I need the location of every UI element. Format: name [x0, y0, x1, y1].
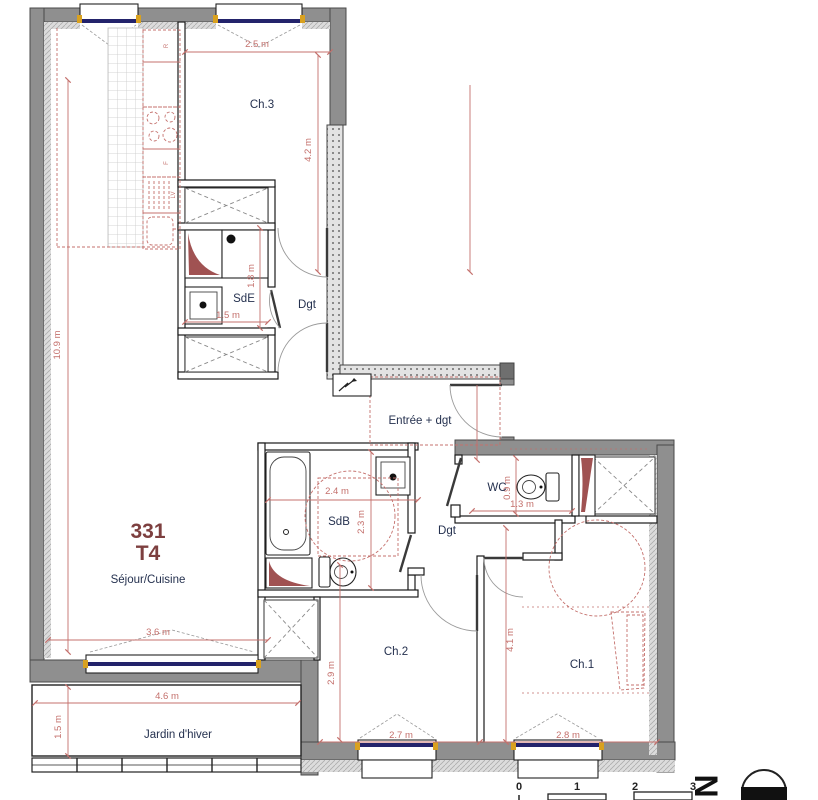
dim-ch3-width: 2.5 m — [245, 39, 269, 50]
room-label-jardin: Jardin d'hiver — [144, 729, 212, 741]
room-label-ch1: Ch.1 — [570, 659, 594, 671]
dim-ch2-width: 2.7 m — [389, 730, 413, 741]
dim-ch1-width: 2.8 m — [556, 730, 580, 741]
scale-tick-0: 0 — [516, 781, 522, 793]
dim-jardin-height: 1.5 m — [53, 715, 64, 739]
room-label-dgt-upper: Dgt — [298, 299, 317, 311]
party-walls — [327, 125, 514, 379]
room-label-ch2: Ch.2 — [384, 646, 408, 658]
kitchen-fixtures: R F LV — [57, 28, 180, 249]
room-label-sde: SdE — [233, 293, 255, 305]
kitchen-dishwasher-label: LV — [171, 192, 177, 199]
unit-number: 331 — [130, 520, 165, 543]
dim-ch3-height: 4.2 m — [303, 138, 314, 162]
scale-tick-2: 2 — [632, 781, 638, 793]
north-arrow: N — [688, 770, 787, 800]
room-label-wc: WC — [487, 482, 506, 494]
dim-ch1-height: 4.1 m — [505, 628, 516, 652]
dim-wc-width: 1.3 m — [510, 499, 534, 510]
room-label-sejour: Séjour/Cuisine — [111, 574, 186, 586]
scale-bar: 0 1 2 3 — [516, 781, 696, 800]
dim-sejour-width: 3.6 m — [146, 627, 170, 638]
kitchen-fridge-label: R — [164, 43, 170, 48]
room-label-dgt-lower: Dgt — [438, 525, 457, 537]
floor-plan-page: R F LV — [0, 0, 818, 800]
dim-sdb-height: 2.3 m — [356, 510, 367, 534]
dim-jardin-width: 4.6 m — [155, 691, 179, 702]
floor-plan: R F LV — [0, 0, 818, 800]
dim-ch2-height: 2.9 m — [326, 661, 337, 685]
dim-sde-width: 1.5 m — [216, 310, 240, 321]
room-label-sdb: SdB — [328, 516, 350, 528]
dim-sejour-height: 10.9 m — [52, 330, 63, 359]
room-label-entree: Entrée + dgt — [389, 415, 453, 427]
scale-tick-1: 1 — [574, 781, 580, 793]
room-label-ch3: Ch.3 — [250, 99, 274, 111]
interior-partitions — [178, 22, 657, 742]
unit-type: T4 — [136, 542, 161, 565]
dim-sde-height: 1.8 m — [246, 264, 257, 288]
north-letter: N — [688, 774, 724, 797]
kitchen-oven-label: F — [164, 161, 170, 165]
dim-sdb-width: 2.4 m — [325, 486, 349, 497]
